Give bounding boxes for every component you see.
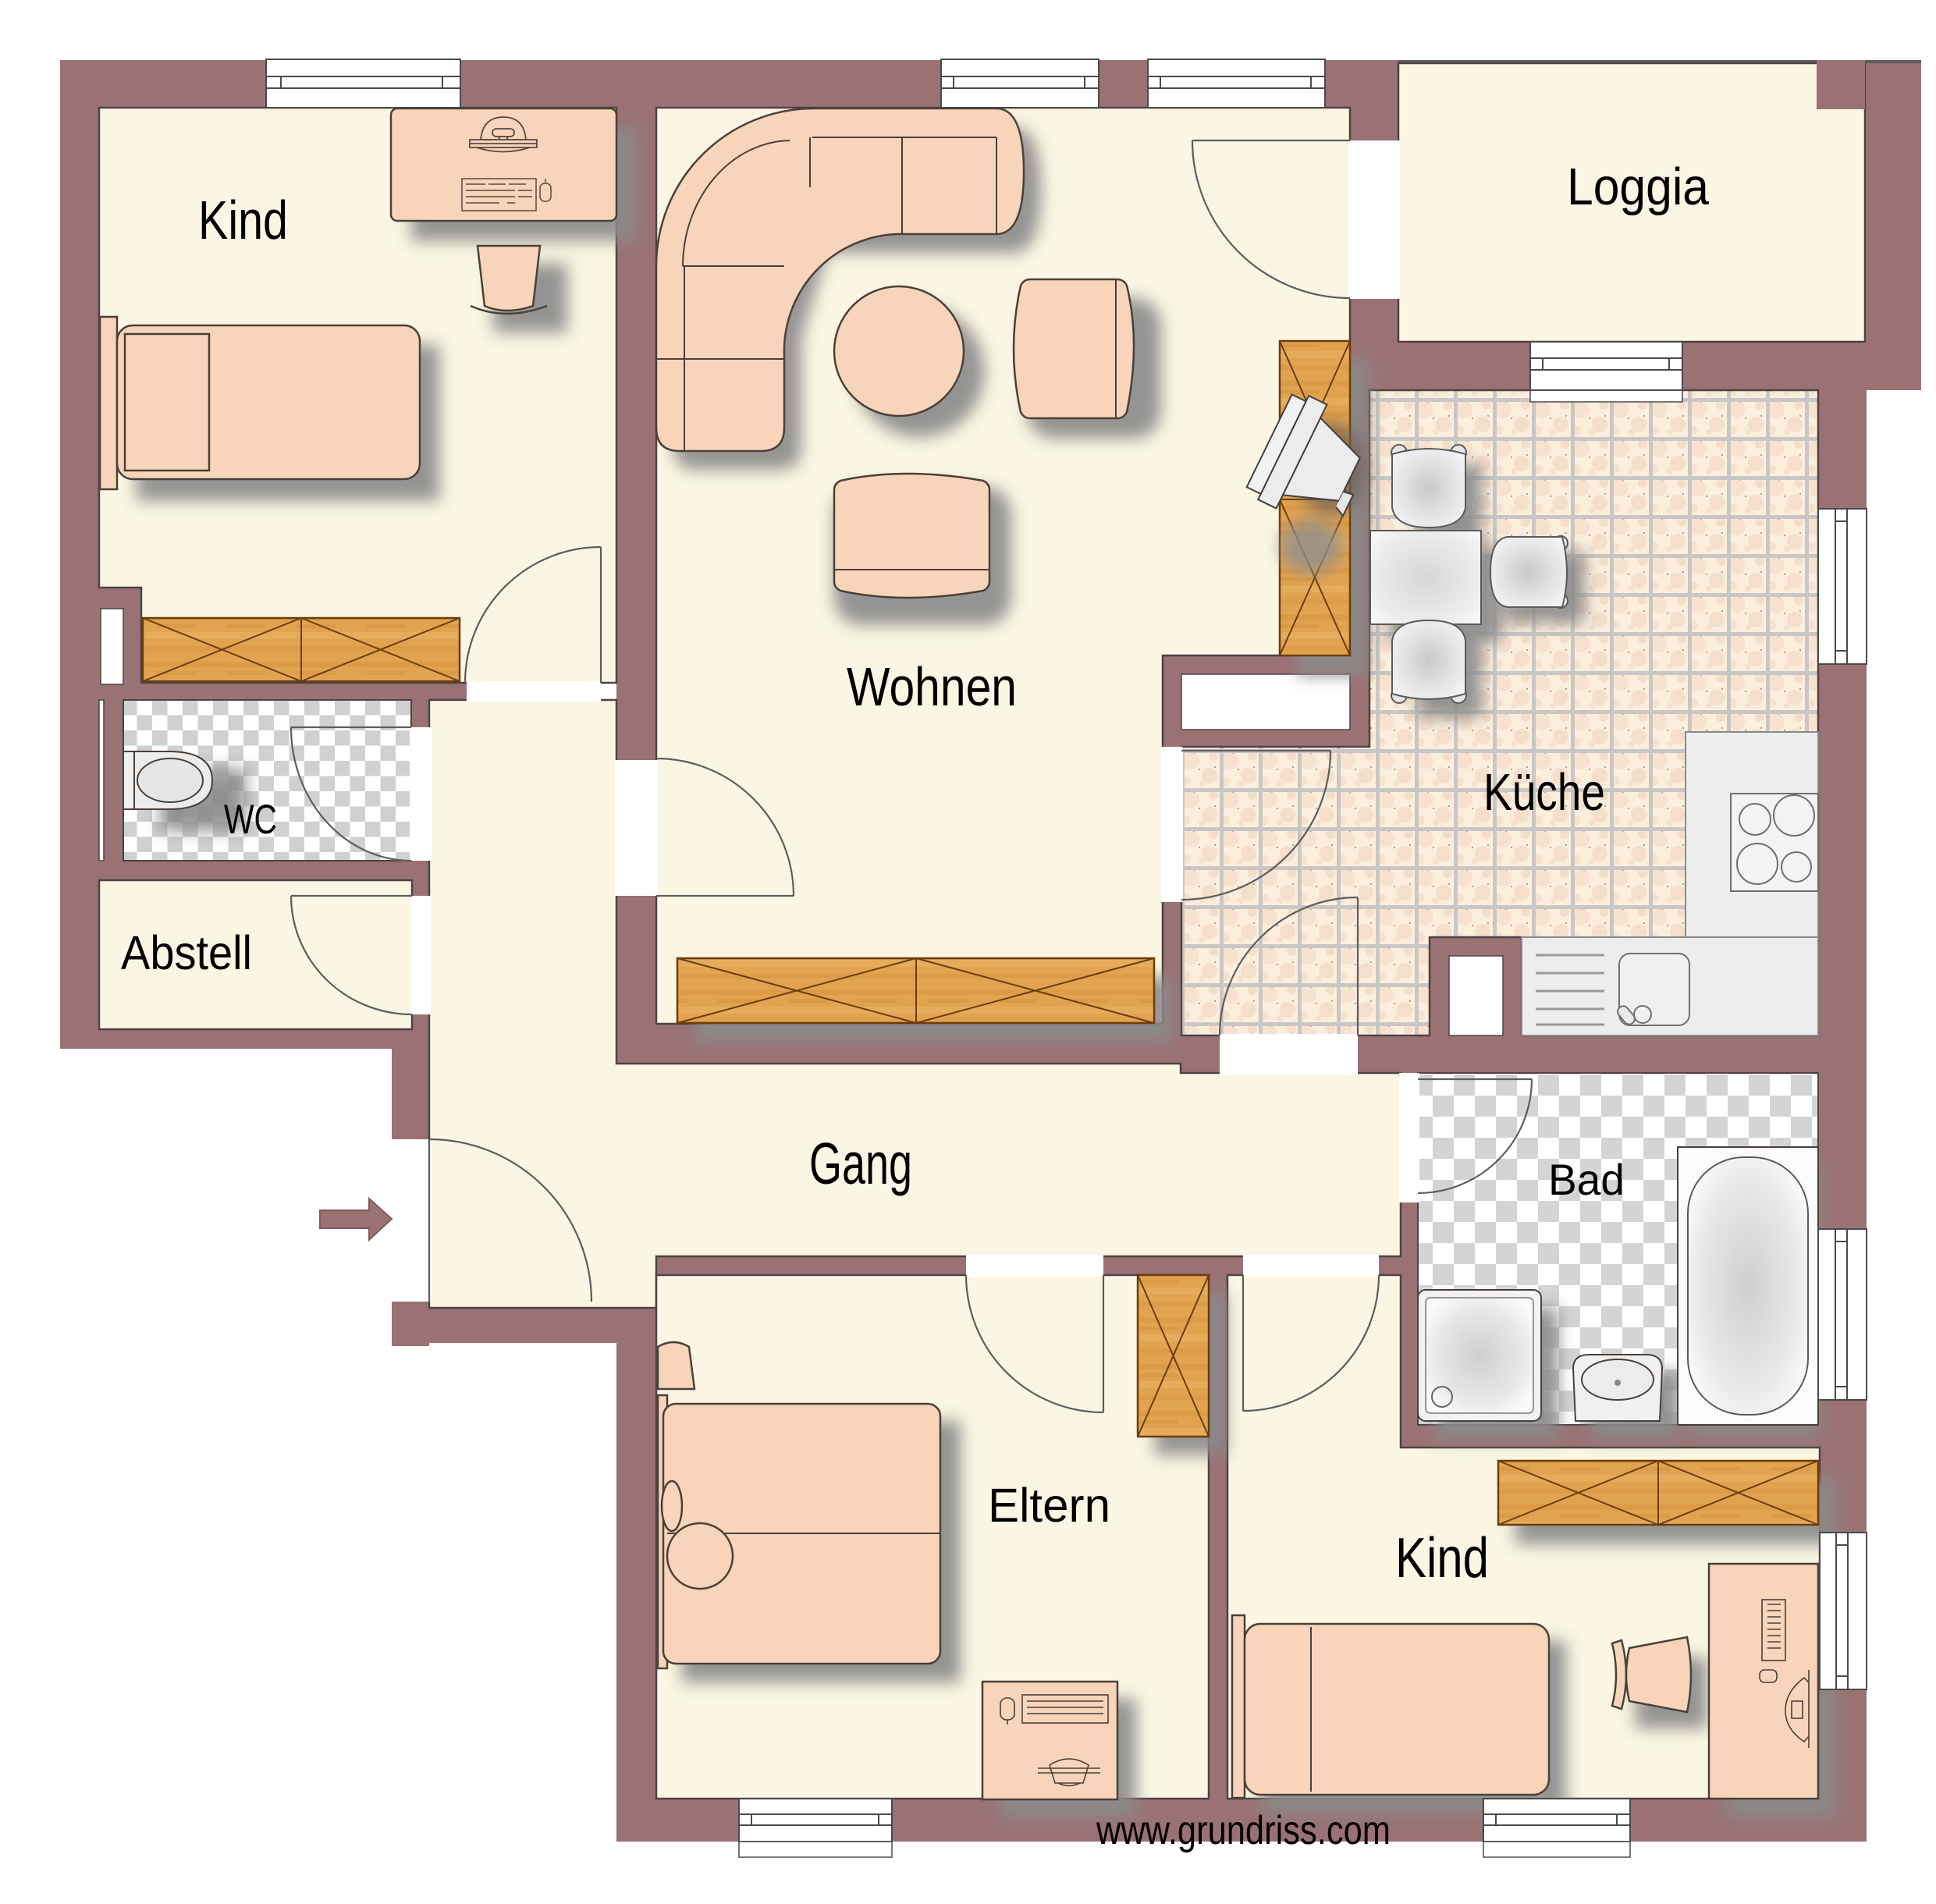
svg-text:Wohnen: Wohnen [847, 656, 1017, 717]
svg-text:Abstell: Abstell [121, 926, 252, 979]
svg-text:WC: WC [224, 797, 277, 843]
svg-text:Gang: Gang [809, 1131, 912, 1196]
svg-text:Küche: Küche [1483, 763, 1605, 822]
svg-text:Loggia: Loggia [1567, 158, 1710, 216]
svg-text:Kind: Kind [1395, 1527, 1489, 1590]
svg-text:Kind: Kind [198, 190, 288, 250]
svg-text:www.grundriss.com: www.grundriss.com [1096, 1808, 1391, 1853]
svg-text:Eltern: Eltern [988, 1479, 1110, 1532]
svg-text:Bad: Bad [1548, 1155, 1625, 1204]
